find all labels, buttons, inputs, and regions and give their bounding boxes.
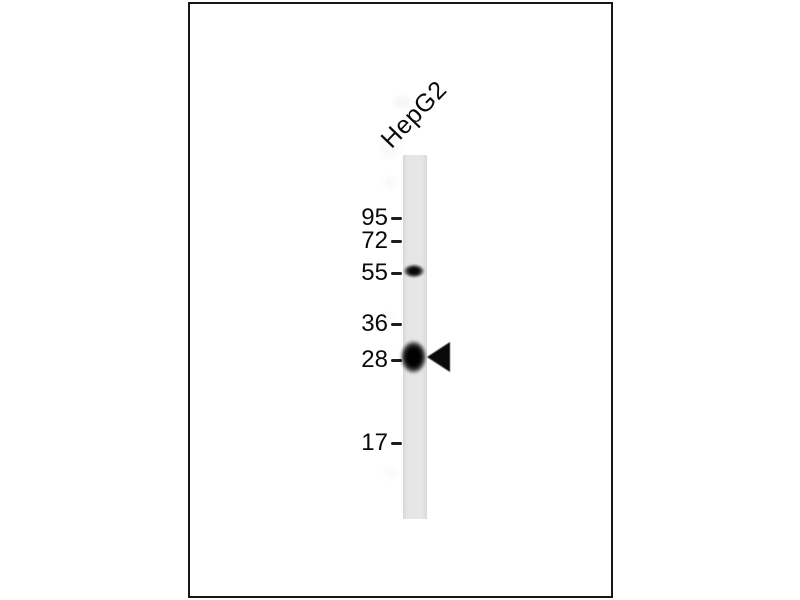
mw-tick (391, 323, 402, 326)
mw-marker-36: 36 (336, 311, 406, 337)
mw-label: 72 (336, 228, 388, 254)
band-arrowhead-icon (427, 342, 450, 372)
mw-label: 36 (336, 311, 388, 337)
mw-tick (391, 442, 402, 445)
western-blot-figure: HepG2 95 72 55 36 28 17 (0, 0, 800, 600)
mw-tick (391, 272, 402, 275)
mw-marker-28: 28 (336, 347, 406, 373)
mw-marker-17: 17 (336, 430, 406, 456)
figure-frame (188, 2, 613, 598)
protein-band-28kda (400, 340, 427, 374)
mw-tick (391, 217, 402, 220)
mw-marker-72: 72 (336, 228, 406, 254)
mw-marker-55: 55 (336, 260, 406, 286)
mw-tick (391, 240, 402, 243)
mw-label: 28 (336, 347, 388, 373)
mw-label: 17 (336, 430, 388, 456)
protein-band-55kda (403, 264, 425, 278)
blot-lane (403, 155, 427, 519)
mw-label: 55 (336, 260, 388, 286)
scan-smudge (384, 467, 397, 479)
scan-smudge (384, 176, 395, 189)
